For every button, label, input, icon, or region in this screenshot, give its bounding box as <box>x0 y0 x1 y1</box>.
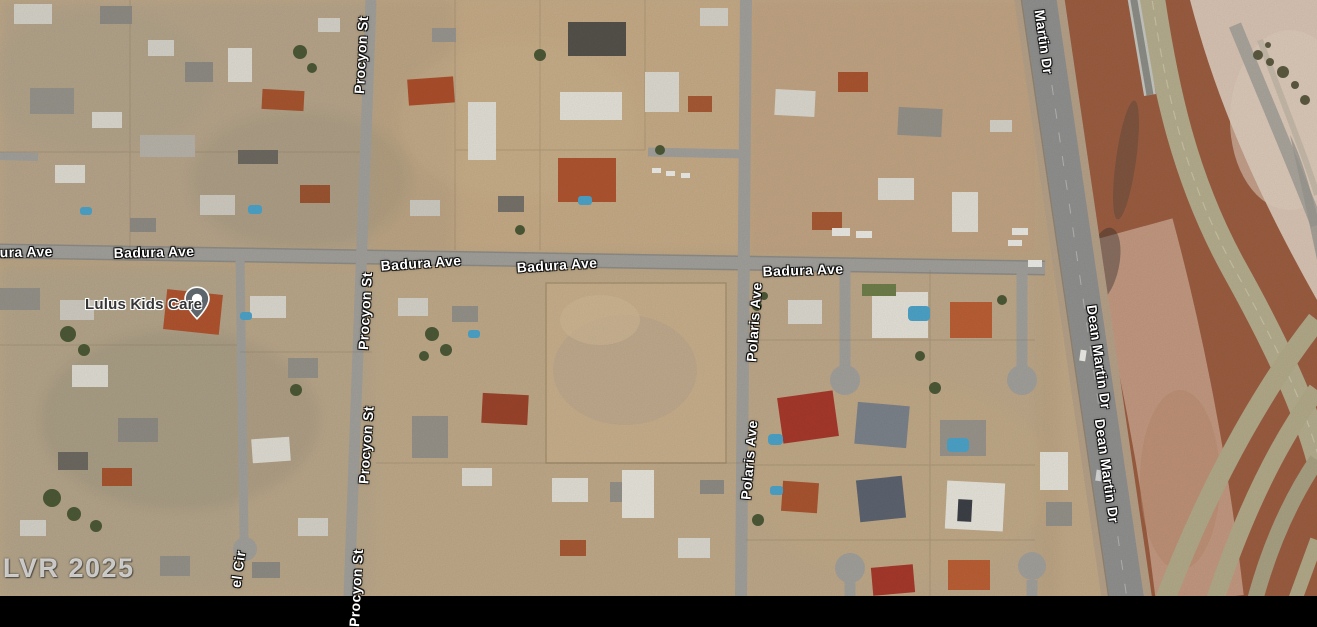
watermark: LVR 2025 <box>3 553 135 584</box>
place-label-lulus-kids-care[interactable]: Lulus Kids Care <box>85 296 202 313</box>
satellite-map[interactable]: Badura Ave Badura Ave Badura Ave Badura … <box>0 0 1317 596</box>
road-label-badura-ave-1: Badura Ave <box>0 243 53 261</box>
road-label-badura-ave-5: Badura Ave <box>762 261 843 280</box>
road-label-procyon-st-4: Procyon St <box>346 549 366 627</box>
road-label-badura-ave-2: Badura Ave <box>113 243 194 261</box>
